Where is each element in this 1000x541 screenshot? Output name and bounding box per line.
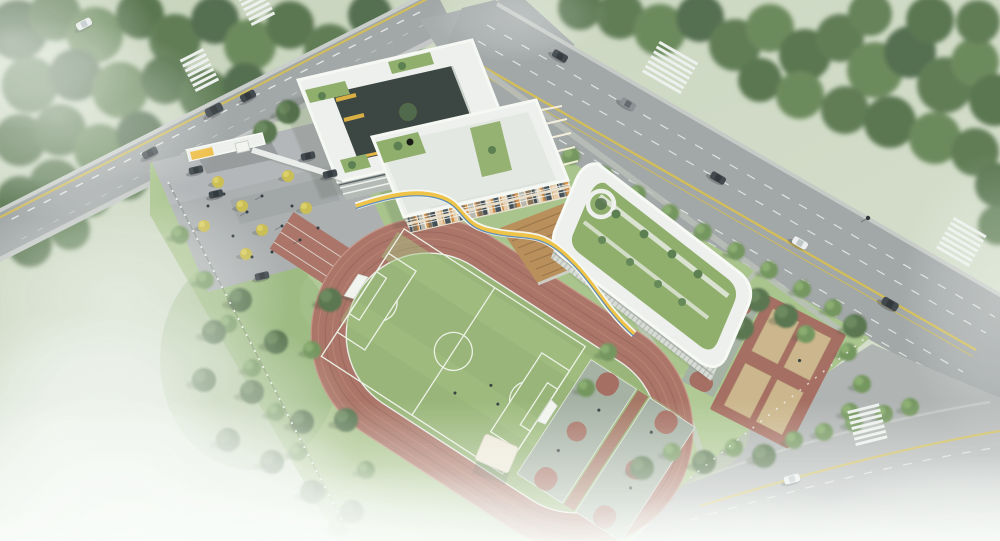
mist-overlays — [0, 0, 1000, 541]
campus-aerial-rendering — [0, 0, 1000, 541]
